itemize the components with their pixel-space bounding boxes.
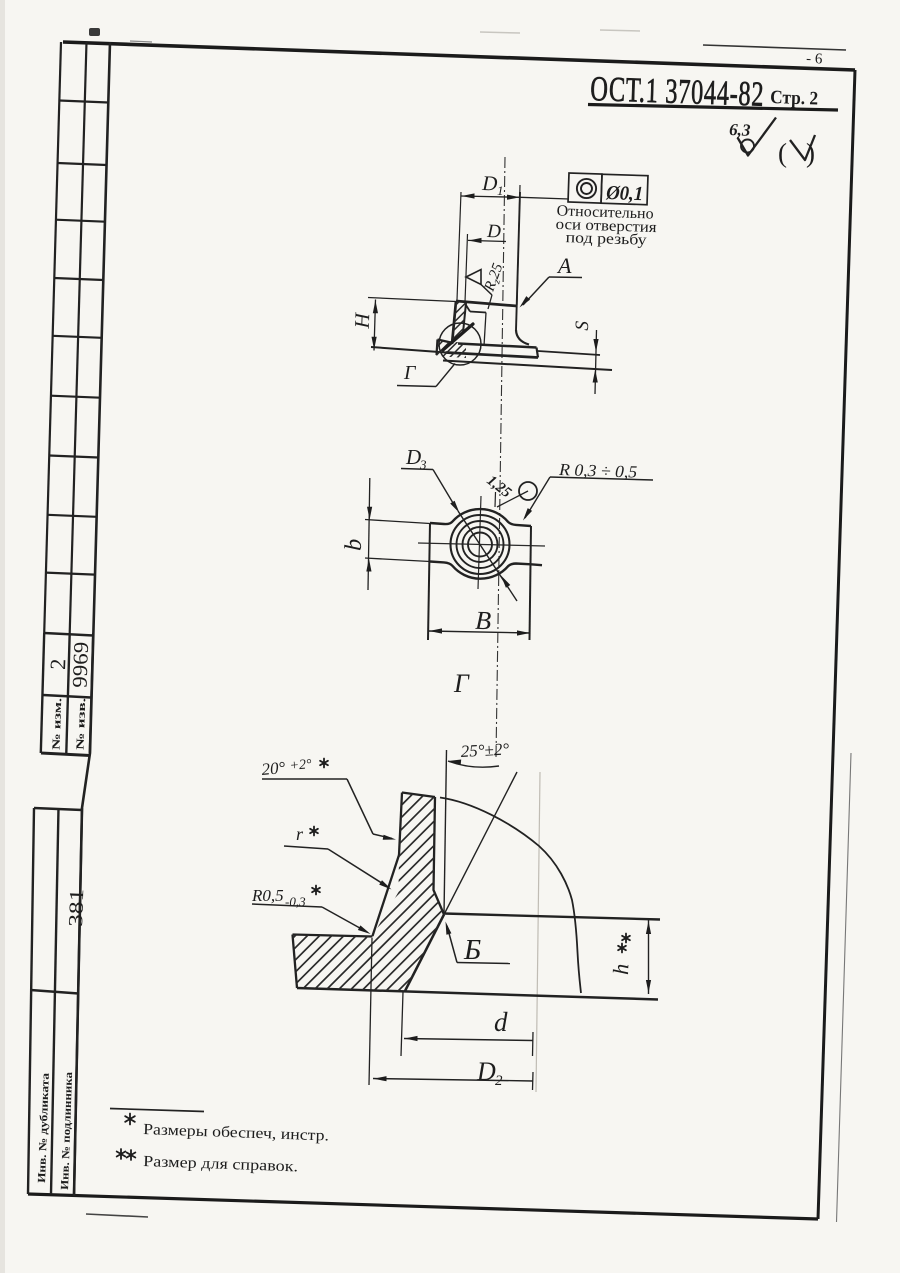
svg-text:D: D xyxy=(481,171,498,196)
svg-text:№ изв.: № изв. xyxy=(75,697,89,750)
svg-text:6,3: 6,3 xyxy=(729,120,751,140)
svg-text:b: b xyxy=(341,538,367,551)
svg-text:h: h xyxy=(608,963,633,975)
svg-text:Ø0,1: Ø0,1 xyxy=(605,182,644,205)
svg-text:В: В xyxy=(475,606,492,636)
svg-text:2: 2 xyxy=(495,1073,503,1089)
svg-text:9969: 9969 xyxy=(68,641,94,688)
svg-text:r: r xyxy=(296,824,304,844)
svg-text:D: D xyxy=(405,445,421,469)
svg-text:2: 2 xyxy=(45,658,70,670)
svg-text:(: ( xyxy=(778,138,787,168)
svg-text:): ) xyxy=(806,138,815,168)
svg-text:Стр. 2: Стр. 2 xyxy=(770,87,819,110)
svg-text:1: 1 xyxy=(497,183,504,198)
svg-text:под резьбу: под резьбу xyxy=(565,229,647,249)
svg-text:А: А xyxy=(556,253,572,278)
svg-text:Г: Г xyxy=(453,669,470,698)
svg-text:D: D xyxy=(476,1057,496,1086)
svg-text:№ изм.: № изм. xyxy=(51,697,65,750)
svg-text:381: 381 xyxy=(65,888,88,927)
svg-text:R0,5: R0,5 xyxy=(251,886,284,905)
svg-text:D: D xyxy=(486,221,502,242)
svg-text:d: d xyxy=(494,1007,508,1037)
svg-text:Г: Г xyxy=(403,362,417,384)
svg-text:20°: 20° xyxy=(261,758,287,779)
svg-text:- 6: - 6 xyxy=(806,51,823,68)
svg-text:Н: Н xyxy=(350,311,375,330)
svg-text:25°±2°: 25°±2° xyxy=(460,739,510,761)
svg-text:Б: Б xyxy=(463,934,481,966)
svg-text:S: S xyxy=(572,320,593,331)
svg-text:+2°: +2° xyxy=(289,757,313,774)
